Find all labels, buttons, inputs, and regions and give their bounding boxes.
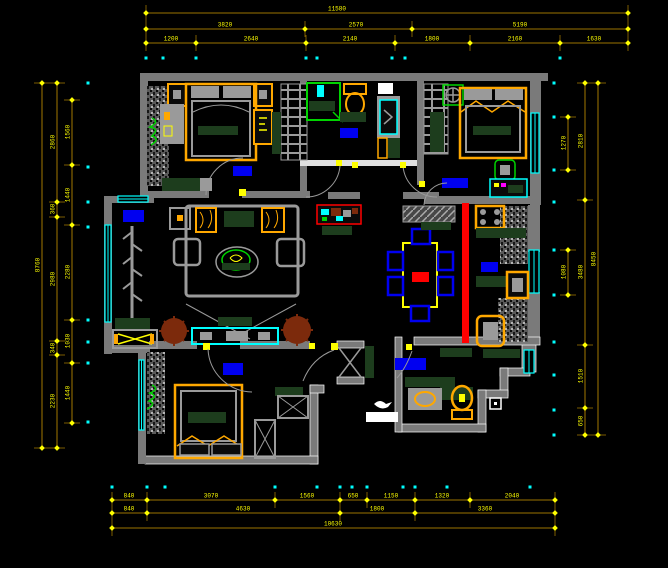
bath1-lower-cab-b	[388, 138, 400, 158]
door-hinge	[400, 162, 406, 168]
dim-label: 1800	[425, 36, 440, 43]
dim-label: 11580	[328, 6, 346, 13]
dim-label: 1800	[370, 506, 385, 513]
shower-bench	[309, 101, 335, 111]
text-block-bedroom3	[223, 363, 243, 375]
toilet2-button	[459, 394, 465, 402]
ext-dot	[274, 486, 277, 489]
dining-chair	[412, 229, 430, 244]
dim-label: 2280	[65, 264, 72, 279]
dim-label: 10630	[324, 521, 342, 528]
balcony-table-x	[118, 334, 152, 344]
dim-tick	[552, 525, 558, 531]
door-hinge	[352, 162, 358, 168]
dim-label: 1440	[65, 385, 72, 400]
dim-tick	[364, 497, 370, 503]
door-hinge	[406, 344, 412, 350]
dining-table-center	[412, 272, 429, 282]
dim-tick	[625, 40, 631, 46]
rug-tile	[322, 217, 327, 221]
text-block-bath2	[395, 358, 426, 370]
bed2-headboard-b	[495, 89, 523, 100]
dim-label: 1510	[578, 368, 585, 383]
dim-label: 1320	[435, 493, 450, 500]
dim-tick	[565, 167, 571, 173]
rug-tile	[343, 210, 351, 217]
sofa-deco-right	[266, 210, 278, 228]
dim-tick	[582, 342, 588, 348]
wall-hall-step	[310, 385, 324, 393]
kitchen-counter-hatch-b	[498, 298, 528, 342]
rug-tile	[352, 208, 358, 214]
door-arc-entry	[303, 350, 334, 381]
ext-dot	[87, 226, 90, 229]
dim-label: 840	[124, 493, 135, 500]
wall-bedroom1-bottom-b	[242, 191, 310, 198]
ext-dot	[553, 409, 556, 412]
bath1-cabinet	[340, 112, 366, 122]
dim-tick	[302, 26, 308, 32]
toilet2-tank	[452, 410, 472, 419]
ext-dot	[402, 486, 405, 489]
ext-dot	[351, 486, 354, 489]
ext-dot	[553, 374, 556, 377]
dim-label: 2160	[508, 36, 523, 43]
ext-dot	[87, 341, 90, 344]
dim-tick	[69, 317, 75, 323]
text-block-kitchen	[481, 262, 498, 272]
dim-label: 3480	[578, 264, 585, 279]
dim-tick	[109, 497, 115, 503]
dim-label: 2140	[343, 36, 358, 43]
ext-dot	[87, 421, 90, 424]
dim-label: 2860	[50, 134, 57, 149]
console-shelf	[322, 226, 352, 235]
nightstand-left-lamp	[173, 90, 181, 99]
dim-label: 1270	[561, 135, 568, 150]
dim-tick	[552, 497, 558, 503]
dim-tick	[69, 162, 75, 168]
sofa-corner-left	[196, 208, 216, 232]
floorplan-drawing: 1158038202570519012002640214018002160163…	[0, 0, 668, 568]
fridge-inner	[483, 322, 498, 340]
dim-tick	[412, 510, 418, 516]
dim-label: 3820	[218, 22, 233, 29]
bed1-cover	[193, 105, 249, 112]
dim-tick	[69, 222, 75, 228]
dim-label: 8760	[35, 257, 42, 272]
dim-label: 2980	[50, 271, 57, 286]
desk-item-b	[501, 183, 506, 187]
cabinet-strip	[272, 112, 281, 154]
wall-bedroom2-left	[417, 73, 424, 185]
dim-label: 2570	[349, 22, 364, 29]
dim-tick	[144, 510, 150, 516]
ext-dot	[111, 486, 114, 489]
dim-label: 5190	[513, 22, 528, 29]
cad-floorplan-canvas: 1158038202570519012002640214018002160163…	[0, 0, 668, 568]
balcony-table-end-a	[114, 334, 118, 344]
ext-dot	[446, 486, 449, 489]
door-hinge	[203, 343, 210, 350]
armchair-right	[277, 239, 304, 266]
dim-label: 2040	[505, 493, 520, 500]
dim-tick	[565, 247, 571, 253]
dining-chair	[388, 252, 403, 270]
bath1-vent	[378, 83, 393, 94]
tv	[226, 331, 248, 341]
ext-dot	[305, 57, 308, 60]
bed3-drawer-b	[212, 444, 241, 455]
dim-label: 2230	[50, 393, 57, 408]
ext-dot	[145, 57, 148, 60]
wall-bedroom3-right	[310, 385, 318, 464]
tv-cabinet-item-b	[258, 332, 270, 340]
wardrobe-bedroom1	[281, 84, 307, 160]
ext-dot	[553, 116, 556, 119]
dim-tick	[144, 497, 150, 503]
wall-top	[140, 73, 548, 81]
entry-door-jamb-b	[337, 377, 364, 384]
shoe-bench-shelf	[421, 222, 451, 230]
entry-door-x	[339, 348, 361, 377]
vanity1-basin	[380, 100, 397, 134]
dim-tick	[109, 510, 115, 516]
dim-label: 1440	[65, 187, 72, 202]
ext-dot	[87, 362, 90, 365]
dim-tick	[467, 497, 473, 503]
dresser-stool	[164, 112, 170, 120]
ext-dot	[553, 294, 556, 297]
cabinet-bedroom1	[254, 110, 272, 144]
logo-glyph	[374, 401, 392, 408]
logo-bar	[366, 412, 398, 422]
rug-tile	[321, 209, 329, 215]
bed1-headboard-b	[223, 86, 251, 98]
ext-dot	[162, 57, 165, 60]
rug-tile	[331, 208, 341, 216]
dim-tick	[557, 40, 563, 46]
dim-tick	[392, 40, 398, 46]
dim-tick	[409, 26, 415, 32]
ext-dot	[553, 169, 556, 172]
dim-label: 360	[50, 203, 57, 214]
rug-tile	[336, 216, 343, 221]
lowboard-bedroom1	[162, 178, 200, 191]
dim-label: 8450	[591, 251, 598, 266]
dim-label: 1560	[65, 124, 72, 139]
ext-dot	[316, 486, 319, 489]
dim-tick	[337, 497, 343, 503]
balcony-table-end-b	[150, 334, 154, 344]
ext-dot	[87, 201, 90, 204]
door-hinge	[309, 343, 315, 349]
dining-chair	[411, 306, 429, 321]
wardrobe3-a-x	[278, 396, 308, 418]
dim-tick	[143, 10, 149, 16]
wall-hall-top-a	[328, 192, 360, 199]
tv-cabinet-item-a	[200, 332, 212, 340]
dim-label: 1150	[384, 493, 399, 500]
burner	[494, 209, 500, 215]
bed3-drawer-a	[180, 444, 209, 455]
dim-label: 3070	[204, 493, 219, 500]
dim-tick	[337, 510, 343, 516]
ext-dot	[87, 319, 90, 322]
nightstand-right-lamp	[259, 90, 267, 99]
dim-label: 650	[348, 493, 359, 500]
door-hinge	[331, 343, 338, 350]
balcony-shelf	[115, 318, 150, 330]
plant-swirl	[230, 255, 242, 262]
dim-tick	[582, 80, 588, 86]
dim-label: 840	[124, 506, 135, 513]
ext-dot	[316, 57, 319, 60]
bed3-pillow	[188, 412, 226, 423]
sofa-deco-left	[200, 210, 212, 228]
bath1-lower-cab-a	[378, 138, 387, 158]
ext-dot	[553, 82, 556, 85]
text-block-bath1	[340, 128, 358, 138]
dim-tick	[565, 292, 571, 298]
sofa-cushion	[224, 211, 254, 227]
stove	[476, 206, 504, 228]
dim-tick	[303, 40, 309, 46]
wall-kitchen-right-b	[528, 292, 540, 344]
dim-label: 1080	[561, 264, 568, 279]
burner	[480, 209, 486, 215]
ext-dot	[146, 486, 149, 489]
dining-chair	[388, 277, 403, 295]
dim-tick	[69, 97, 75, 103]
side-table-item	[177, 215, 183, 221]
ext-dot	[87, 166, 90, 169]
bath2-counter-b	[483, 349, 520, 358]
bed2-pillow	[473, 126, 511, 135]
door-hinge	[239, 189, 246, 196]
ext-dot	[404, 57, 407, 60]
ext-dot	[195, 57, 198, 60]
dim-label: 650	[578, 415, 585, 426]
wardrobe2-strip	[430, 112, 444, 152]
dim-tick	[552, 510, 558, 516]
dim-label: 4630	[236, 506, 251, 513]
dim-tick	[54, 445, 60, 451]
dim-label: 1030	[65, 333, 72, 348]
dining-chair	[438, 252, 453, 270]
floor-drain-dot	[494, 402, 497, 405]
dim-label: 3360	[478, 506, 493, 513]
burner	[494, 219, 500, 225]
dim-tick	[39, 445, 45, 451]
toilet1-bowl	[346, 93, 364, 115]
dim-tick	[69, 360, 75, 366]
ext-dot	[559, 57, 562, 60]
bed1-headboard-a	[191, 86, 219, 98]
dim-tick	[39, 80, 45, 86]
dim-tick	[69, 420, 75, 426]
wall-left-upper	[140, 73, 148, 198]
dim-tick	[193, 40, 199, 46]
ext-dot	[87, 82, 90, 85]
ext-dot	[366, 486, 369, 489]
ext-dot	[339, 486, 342, 489]
kitchen-sink-basin	[512, 278, 523, 292]
text-block-bedroom1	[233, 166, 252, 176]
dim-label: 340	[50, 342, 57, 353]
dim-tick	[54, 80, 60, 86]
bed1-pillow	[198, 126, 238, 135]
dresser	[160, 104, 184, 144]
dim-tick	[272, 497, 278, 503]
dim-tick	[143, 26, 149, 32]
desk-item-a	[494, 183, 499, 187]
wall-bedroom1-bottom-a	[147, 191, 209, 198]
door-hinge	[336, 160, 342, 166]
door-hinge	[419, 181, 425, 187]
dining-chair	[438, 277, 453, 295]
bath2-vanity-a	[405, 377, 455, 387]
bedroom3-shelf	[275, 387, 303, 396]
ext-dot	[414, 486, 417, 489]
dim-tick	[625, 10, 631, 16]
shoe-bench-hatch	[403, 206, 455, 222]
ext-dot	[164, 486, 167, 489]
ext-dot	[529, 486, 532, 489]
bath2-counter-a	[440, 348, 472, 357]
dim-tick	[109, 525, 115, 531]
table-tray	[222, 263, 250, 270]
ext-dot	[553, 434, 556, 437]
dim-tick	[565, 114, 571, 120]
dim-tick	[582, 197, 588, 203]
dim-tick	[467, 40, 473, 46]
ext-dot	[553, 341, 556, 344]
entry-door-jamb-a	[337, 341, 364, 348]
dim-tick	[412, 497, 418, 503]
desk-chair-seat	[500, 165, 510, 175]
dim-tick	[625, 26, 631, 32]
ext-dot	[391, 57, 394, 60]
wall-kitchen-right-a	[528, 205, 540, 252]
dim-label: 1630	[587, 36, 602, 43]
dim-tick	[595, 432, 601, 438]
kitchen-counter-a	[476, 228, 526, 238]
dim-label: 2810	[578, 133, 585, 148]
dim-tick	[582, 405, 588, 411]
dim-label: 1200	[164, 36, 179, 43]
desk-item-c	[508, 185, 523, 193]
dim-tick	[595, 80, 601, 86]
entry-strip	[365, 346, 374, 378]
ext-dot	[553, 201, 556, 204]
text-block-living	[123, 210, 144, 222]
sofa-corner-right	[262, 208, 284, 232]
wardrobe3-b-x	[255, 420, 275, 458]
kitchen-divider	[462, 203, 469, 343]
wall-bath2-bottom	[398, 424, 486, 432]
shower-head	[317, 85, 324, 97]
tv-panel	[218, 317, 252, 326]
burner	[480, 219, 486, 225]
dim-label: 2640	[244, 36, 259, 43]
dim-tick	[143, 40, 149, 46]
ext-dot	[553, 249, 556, 252]
bed2-headboard-a	[464, 89, 492, 100]
dim-label: 1560	[300, 493, 315, 500]
dim-tick	[582, 432, 588, 438]
